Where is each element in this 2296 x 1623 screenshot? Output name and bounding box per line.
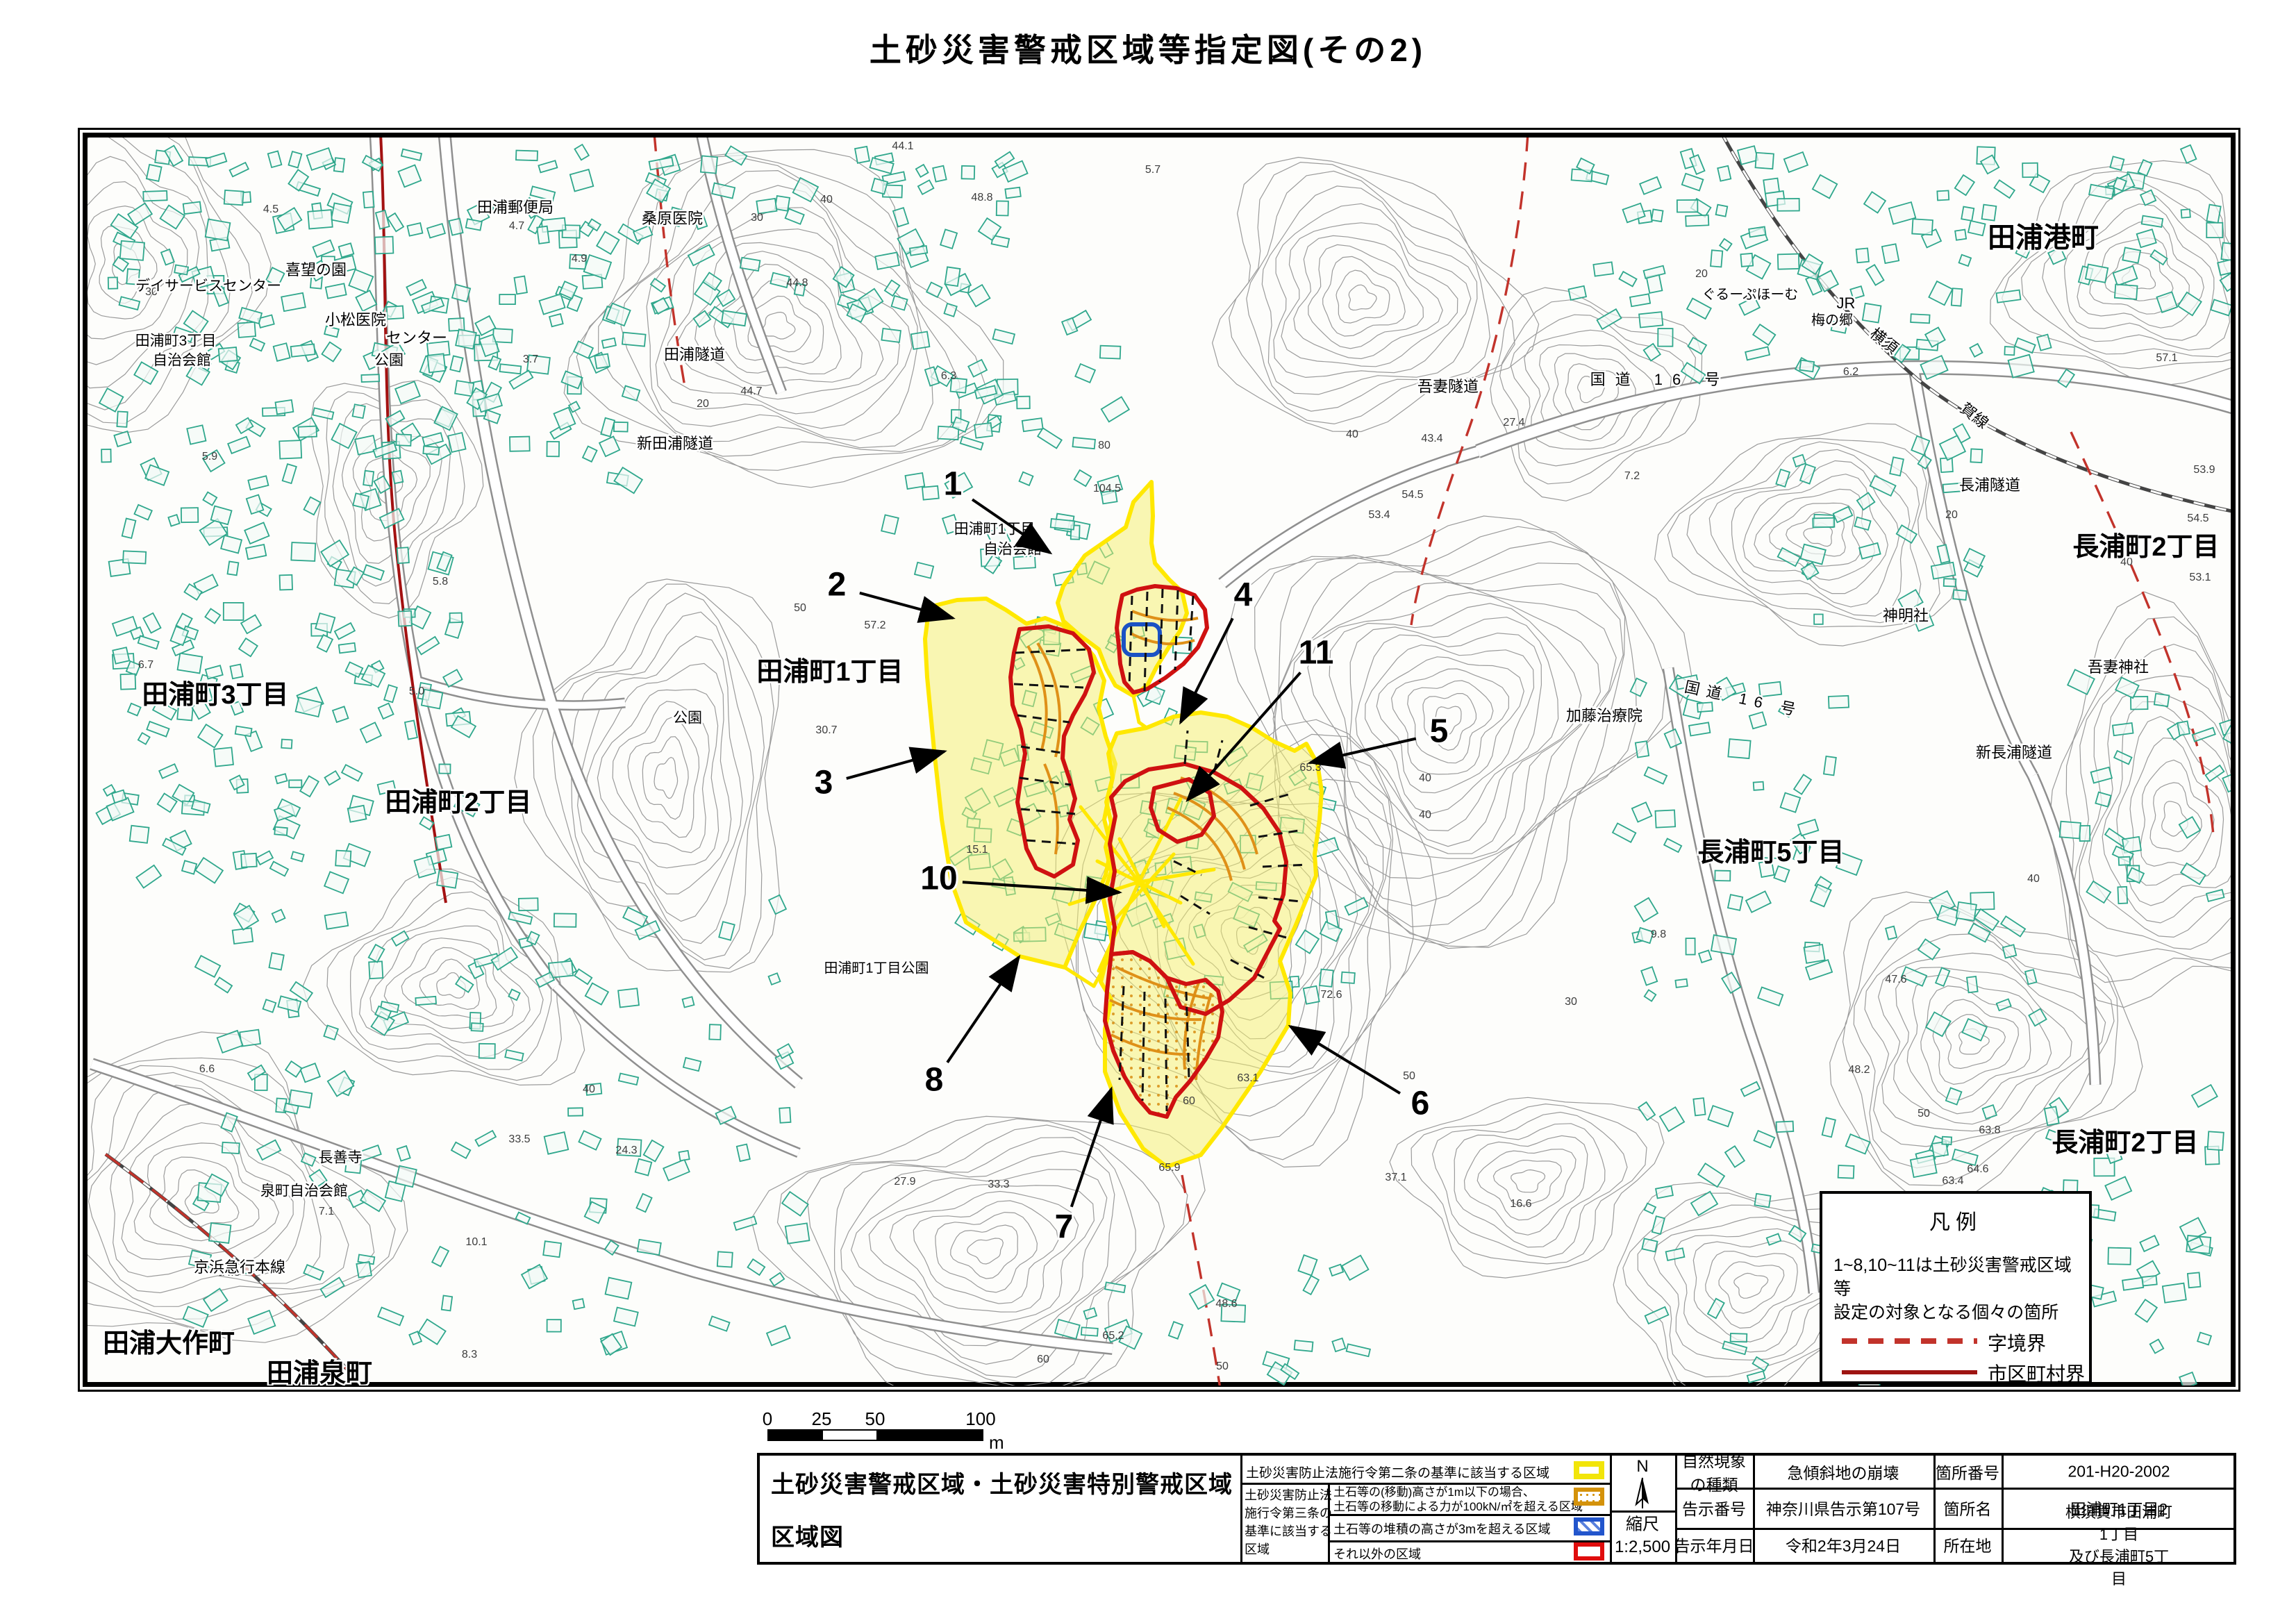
place-label: ぐるーぷほーむ [1702,287,1799,302]
legend-title: 凡例 [1822,1205,2089,1235]
elevation-label: 6.7 [138,659,153,671]
marker-arrow [1290,1026,1400,1093]
area-marker-number: 2 [828,567,847,604]
elevation-label: 53.9 [2193,464,2215,476]
place-label: 田浦町1丁目 [756,658,903,687]
elevation-label: 40 [1419,809,1431,821]
scale-value: 1:2,500 [1615,1538,1670,1557]
elevation-label: 50 [1216,1360,1229,1372]
elevation-label: 64.6 [1967,1163,1988,1175]
place-label: 長浦町5丁目 [1697,838,1844,867]
elevation-label: 5.8 [433,576,448,588]
elevation-label: 27.9 [894,1176,915,1188]
legend-description: 1~8,10~11は土砂災害警戒区域等 設定の対象となる個々の箇所 [1833,1254,2081,1324]
marker-arrow [947,957,1019,1063]
elevation-label: 5.9 [202,451,217,463]
elevation-label: 40 [2027,873,2040,885]
detail-label-notice-date: 告示年月日 [1674,1533,1754,1556]
area-marker-number: 10 [920,860,957,897]
legend-item-municipal-boundary: 市区町村界 [1822,1358,2089,1385]
compass-label: N [1627,1457,1658,1476]
place-label: 自治会館 [983,542,1042,558]
legend-desc-line2: 設定の対象となる個々の箇所 [1833,1301,2081,1324]
elevation-label: 16.6 [1510,1198,1531,1210]
elevation-label: 15.1 [966,844,988,856]
place-label: 長善寺 [319,1150,363,1166]
detail-value-notice-number: 神奈川県告示第107号 [1766,1496,1920,1520]
elevation-label: 40 [583,1083,595,1095]
law-item-deposit-height: 土石等の堆積の高さが3mを超える区域 [1333,1520,1550,1538]
elevation-label: 7.2 [1624,470,1640,482]
marker-arrow [1181,618,1233,722]
area-marker-number: 4 [1234,577,1253,614]
dashed-red-line-sample [1842,1338,1977,1344]
elevation-label: 3.7 [523,353,538,365]
elevation-label: 33.3 [988,1179,1009,1190]
elevation-label: 65.2 [1102,1330,1124,1342]
law-item-debris-force: 土石等の(移動)高さが1m以下の場合、 土石等の移動による力が100kN/㎡を超… [1333,1485,1583,1514]
elevation-label: 65.3 [1299,762,1321,774]
detail-label-location: 所在地 [1944,1533,1992,1556]
detail-value-site-number: 201-H20-2002 [2068,1463,2170,1481]
place-label: 梅の郷 [1811,312,1853,328]
law-item-other: それ以外の区域 [1333,1545,1421,1563]
place-label: 田浦郵便局 [477,199,554,216]
place-label: 田浦町2丁目 [385,788,531,817]
place-label: 公園 [374,353,404,369]
place-label: 田浦港町 [1988,223,2099,253]
place-label: 吾妻神社 [2088,658,2149,676]
place-label: 喜望の園 [285,261,347,278]
area-marker-number: 3 [815,765,833,801]
place-label: 長浦町2丁目 [2072,533,2219,562]
scale-tick: 100 [965,1408,995,1430]
map-sheet-title-line2: 区域図 [771,1518,844,1552]
area-marker-number: 5 [1430,713,1449,750]
elevation-label: 47.6 [1885,974,1906,985]
elevation-label: 53.4 [1368,509,1390,521]
elevation-label: 63.1 [1237,1072,1258,1084]
place-label: 吾妻隧道 [1417,378,1479,395]
legend-item-aza-boundary: 字境界 [1822,1327,2089,1355]
north-compass: N [1627,1457,1658,1513]
elevation-label: 24.3 [615,1145,637,1156]
elevation-label: 44.1 [892,140,913,152]
elevation-label: 57.1 [2156,352,2177,364]
place-label: 新長浦隧道 [1976,744,2052,761]
place-label: 加藤治療院 [1566,707,1642,724]
info-table: 土砂災害警戒区域・土砂災害特別警戒区域 区域図 土砂災害防止法施行令第二条の基準… [757,1453,2236,1565]
elevation-label: 4.9 [572,253,587,265]
place-label: 国道 16 号 [1590,371,1730,388]
elevation-label: 50 [794,602,806,614]
elevation-label: 48.8 [971,192,992,203]
place-label: 長浦隧道 [1959,476,2020,494]
elevation-label: 8.3 [462,1349,477,1360]
map-sheet-title-line1: 土砂災害警戒区域・土砂災害特別警戒区域 [771,1465,1233,1499]
legend-desc-line1: 1~8,10~11は土砂災害警戒区域等 [1833,1254,2081,1301]
detail-label-site-name: 箇所名 [1944,1496,1992,1520]
place-label: 泉町自治会館 [260,1183,348,1199]
elevation-label: 27.4 [1503,417,1524,428]
elevation-label: 43.4 [1421,433,1442,444]
elevation-label: 104.5 [1093,483,1121,494]
elevation-label: 40 [1419,772,1431,784]
elevation-label: 60 [1037,1354,1049,1365]
elevation-label: 6.3 [941,370,956,382]
elevation-label: 63.4 [1942,1175,1963,1187]
place-label: 長浦町2丁目 [2052,1129,2198,1158]
area-marker-number: 8 [925,1062,944,1099]
warning-zone-yellow [1101,713,1322,1167]
elevation-label: 40 [820,194,833,206]
marker-arrow [847,751,945,779]
place-label: 公園 [673,710,702,726]
elevation-label: 63.8 [1979,1124,2000,1136]
detail-label-notice-number: 告示番号 [1682,1496,1746,1520]
elevation-label: 20 [697,398,709,410]
detail-label-site-number: 箇所番号 [1936,1460,1999,1483]
elevation-label: 37.1 [1385,1172,1406,1183]
elevation-label: 54.5 [2187,513,2208,524]
elevation-label: 6.6 [199,1063,215,1075]
detail-label-phenomenon: 自然現象 の種類 [1682,1448,1746,1495]
elevation-label: 5.0 [409,685,424,697]
place-label: 田浦大作町 [103,1329,235,1358]
elevation-label: 30.7 [815,724,837,736]
scale-label: 縮尺 [1626,1510,1659,1535]
elevation-label: 72.6 [1320,989,1342,1001]
north-arrow-icon [1632,1476,1653,1510]
marker-arrow [1311,739,1416,763]
place-label: 田浦町3丁目 [142,681,288,710]
scale-tick: 0 [763,1408,772,1430]
elevation-label: 20 [1945,509,1958,521]
place-label: デイサービスセンター [135,278,281,294]
legend-item-label: 字境界 [1988,1329,2046,1356]
area-marker-number: 6 [1411,1085,1430,1122]
hazard-zones [925,482,1322,1167]
place-label: JR [1837,294,1856,312]
elevation-label: 9.8 [1651,929,1666,940]
place-label: 桑原医院 [642,210,703,227]
legend-box: 凡例 1~8,10~11は土砂災害警戒区域等 設定の対象となる個々の箇所 字境界… [1820,1191,2092,1384]
elevation-label: 30 [751,212,763,224]
elevation-label: 5.7 [1145,164,1161,176]
place-label: 自治会館 [153,353,211,369]
place-label: 小松医院 [325,311,386,328]
place-label: 田浦隧道 [664,346,725,363]
elevation-label: 57.2 [864,619,885,631]
detail-value-phenomenon: 急傾斜地の崩壊 [1788,1460,1899,1483]
elevation-label: 33.5 [508,1133,530,1145]
elevation-label: 50 [1918,1108,1930,1120]
elevation-label: 50 [1403,1070,1415,1082]
elevation-label: 6.2 [1843,366,1858,378]
elevation-label: 4.5 [263,203,278,215]
place-label: 田浦町1丁目公園 [824,960,929,976]
scale-tick: 50 [865,1408,885,1430]
page-title: 土砂災害警戒区域等指定図(その2) [0,25,2296,71]
place-label: 京浜急行本線 [194,1258,285,1276]
elevation-label: 7.1 [319,1206,334,1217]
elevation-label: 4.7 [509,220,524,232]
elevation-label: 53.1 [2189,572,2211,583]
elevation-label: 60 [1183,1095,1195,1107]
scale-unit: m [989,1432,1004,1454]
zone-boundary-segment [1133,696,1139,722]
marker-arrow [1072,1089,1111,1207]
place-label: 田浦泉町 [267,1359,372,1385]
elevation-label: 40 [1346,428,1358,440]
elevation-label: 44.8 [786,277,808,289]
elevation-label: 48.2 [1848,1064,1870,1076]
swatch-special-zone-blue [1574,1517,1604,1535]
legend-item-label: 市区町村界 [1988,1359,2085,1387]
scale-bar-graphic [767,1429,983,1441]
solid-red-line-sample [1842,1370,1977,1374]
elevation-label: 48.6 [1215,1298,1237,1310]
place-label: 神明社 [1883,607,1929,624]
swatch-warning-zone-yellow [1574,1461,1604,1479]
detail-value-notice-date: 令和2年3月24日 [1786,1533,1901,1556]
detail-value-location: 横須賀市田浦町1丁目 及び長浦町5丁目 [2062,1500,2177,1589]
place-label: 新田浦隧道 [637,435,713,452]
area-marker-number: 1 [944,466,963,503]
hazard-map-document: 土砂災害警戒区域等指定図(その2) 304.54.73.75.86.75.95.… [0,0,2296,1623]
elevation-label: 20 [1695,268,1708,280]
swatch-special-zone-red [1574,1542,1604,1560]
area-marker-number: 11 [1299,635,1334,672]
elevation-label: 30 [1565,996,1577,1008]
zone-boundary-segment [1065,967,1094,986]
scale-tick: 25 [812,1408,832,1430]
place-label: 田浦町3丁目 [135,333,217,349]
elevation-label: 44.7 [740,385,762,397]
law-article2-text: 土砂災害防止法施行令第二条の基準に該当する区域 [1246,1463,1572,1481]
elevation-label: 10.1 [465,1236,487,1248]
law-article3-group-label: 土砂災害防止法 施行令第三条の 基準に該当する 区域 [1245,1486,1332,1558]
place-label: センター [386,329,447,347]
swatch-special-zone-orange [1574,1488,1604,1506]
area-marker-number: 7 [1055,1209,1074,1246]
elevation-label: 54.5 [1401,489,1423,501]
elevation-label: 80 [1098,440,1110,451]
elevation-label: 65.9 [1158,1162,1180,1174]
